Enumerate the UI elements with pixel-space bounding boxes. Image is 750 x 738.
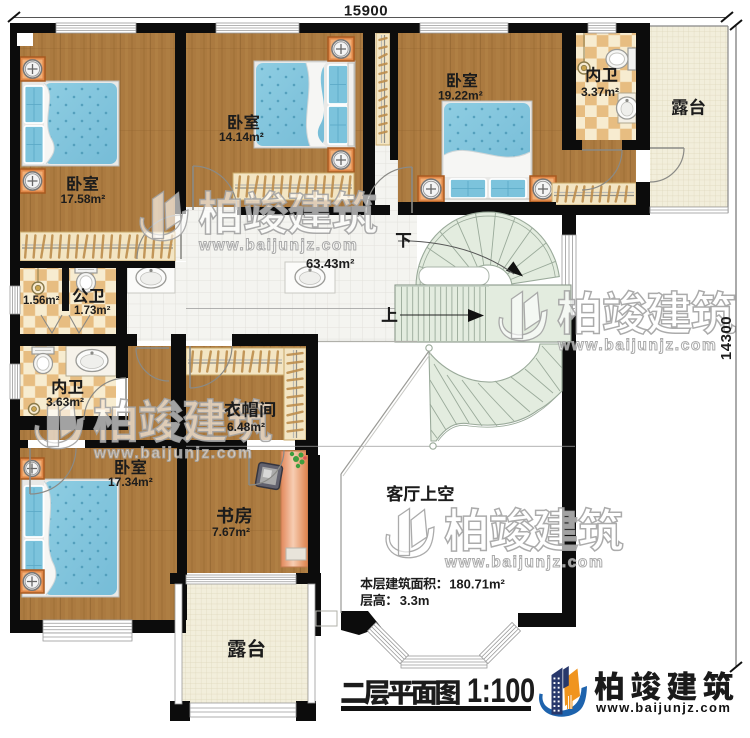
svg-text:3.3m: 3.3m [400, 593, 430, 608]
svg-text:1.73m²: 1.73m² [74, 305, 111, 317]
svg-text:www.baijunjz.com: www.baijunjz.com [198, 237, 358, 254]
svg-text:7.67m²: 7.67m² [212, 525, 250, 539]
svg-text:1.56m²: 1.56m² [23, 295, 60, 307]
svg-text:www.baijunjz.com: www.baijunjz.com [93, 445, 253, 462]
svg-text:www.baijunjz.com: www.baijunjz.com [444, 554, 604, 571]
svg-text:15900: 15900 [344, 3, 388, 20]
svg-text:14300: 14300 [718, 316, 735, 360]
svg-text:17.34m²: 17.34m² [108, 475, 153, 489]
svg-text:180.71m²: 180.71m² [449, 577, 505, 592]
svg-text:63.43m²: 63.43m² [306, 256, 355, 271]
svg-text:3.63m²: 3.63m² [46, 395, 84, 409]
svg-text:14.14m²: 14.14m² [219, 130, 264, 144]
svg-text:www.baijunjz.com: www.baijunjz.com [595, 700, 731, 715]
svg-text:3.37m²: 3.37m² [581, 85, 619, 99]
svg-text:17.58m²: 17.58m² [61, 192, 106, 206]
svg-text:1:100: 1:100 [467, 671, 535, 710]
svg-text:19.22m²: 19.22m² [438, 89, 483, 103]
svg-text:www.baijunjz.com: www.baijunjz.com [557, 337, 717, 354]
svg-text:6.48m²: 6.48m² [227, 420, 265, 434]
